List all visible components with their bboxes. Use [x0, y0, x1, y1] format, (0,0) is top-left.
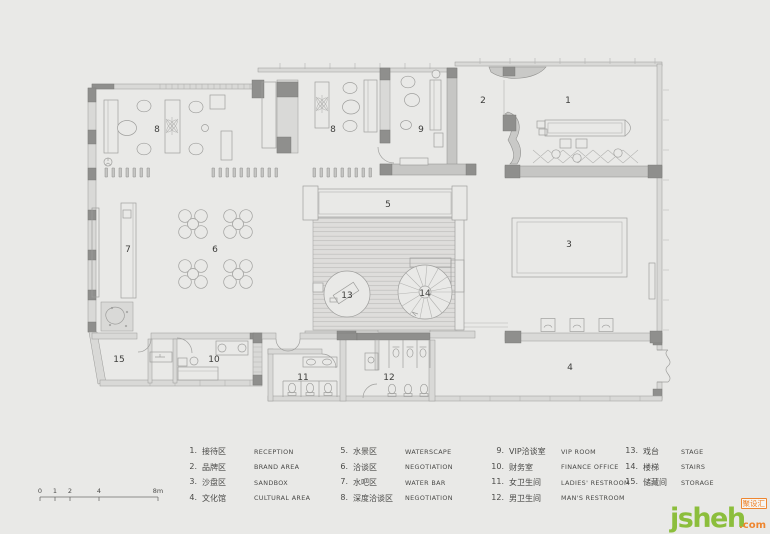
room-label-9: 9	[418, 125, 424, 135]
finance-office-10	[150, 341, 248, 380]
floor-plan-page: 1 2 3 4 5 6 7 8 8 9 10 11 12 13 14 15 0 …	[0, 0, 770, 534]
vip-room-9	[400, 70, 443, 165]
watermark-logo[interactable]: jsheh .com 聚设汇	[670, 498, 768, 532]
room-label-6: 6	[212, 245, 218, 255]
room-label-4: 4	[567, 363, 573, 373]
room-label-14: 14	[419, 289, 431, 299]
lounge-8a	[104, 95, 232, 166]
lounge-8b	[315, 80, 377, 132]
room-label-8b: 8	[330, 125, 336, 135]
legend: 1.接待区RECEPTION 2.品牌区BRAND AREA 3.沙盘区SAND…	[0, 446, 770, 512]
room-label-11: 11	[297, 373, 308, 383]
room-label-13: 13	[341, 291, 352, 301]
reception-1	[489, 67, 638, 164]
watermark-name: jsheh	[670, 505, 745, 532]
room-label-15: 15	[113, 355, 124, 365]
slat-screens	[105, 168, 372, 177]
room-label-10: 10	[208, 355, 220, 365]
cultural-area-4	[541, 319, 613, 332]
watermark-badge: 聚设汇	[741, 498, 768, 509]
room-label-1: 1	[565, 96, 571, 106]
watermark-tld: .com	[739, 520, 766, 531]
room-label-3: 3	[566, 240, 572, 250]
room-label-5: 5	[385, 200, 391, 210]
sandbox-3	[512, 218, 655, 299]
water-bar-7	[92, 203, 136, 331]
room-label-2: 2	[480, 96, 486, 106]
ladies-restroom-11	[283, 357, 337, 397]
room-label-12: 12	[383, 373, 394, 383]
room-label-8a: 8	[154, 125, 160, 135]
room-label-7: 7	[125, 245, 131, 255]
